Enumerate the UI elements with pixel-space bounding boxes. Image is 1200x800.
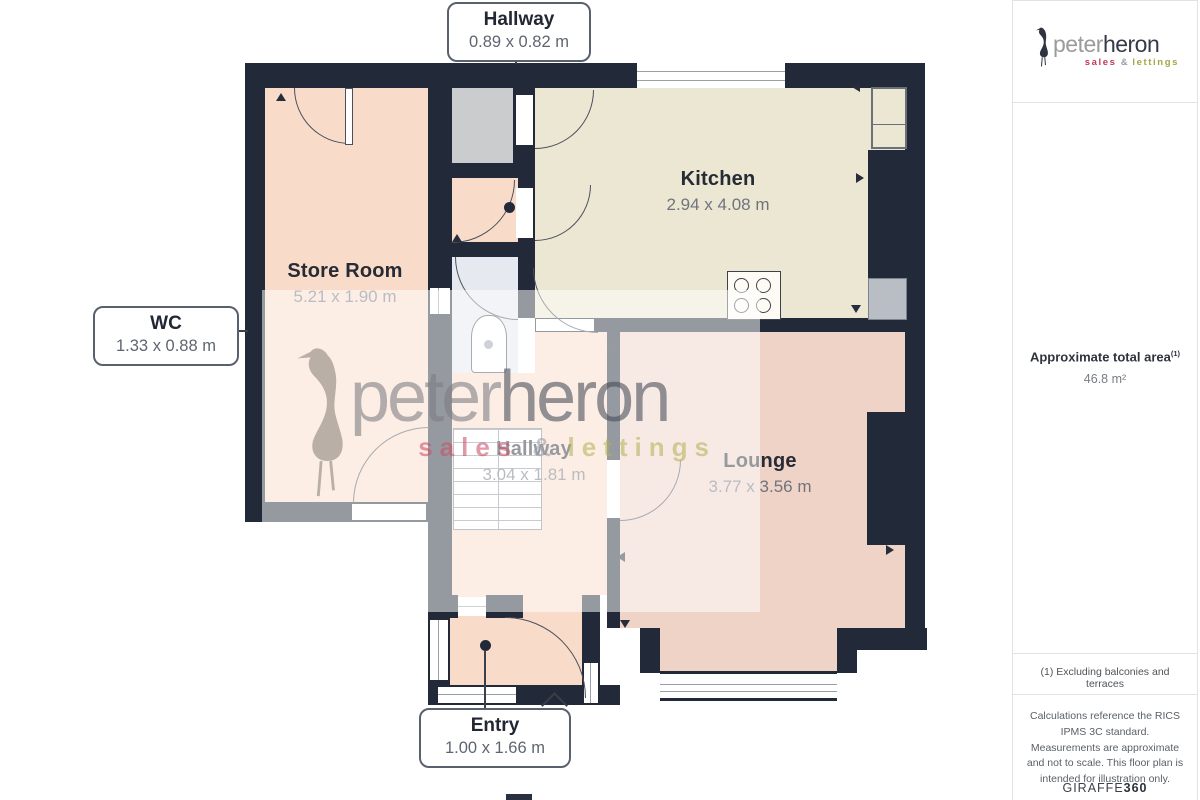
direction-arrow-icon bbox=[620, 620, 630, 628]
brand-wordmark: peterheron bbox=[1053, 31, 1159, 58]
bay-window bbox=[660, 671, 837, 701]
cupboard-floor bbox=[452, 88, 513, 163]
brand-tagline: sales & lettings bbox=[1053, 57, 1179, 68]
wall bbox=[868, 150, 905, 278]
giraffe360-credit: GIRAFFE360 bbox=[1013, 781, 1197, 795]
callout-connector bbox=[484, 650, 486, 710]
info-sidebar: peterheron sales & lettings Approximate … bbox=[1012, 0, 1198, 800]
chimney-breast bbox=[867, 412, 905, 545]
divider bbox=[1013, 102, 1197, 103]
door-opening bbox=[516, 188, 533, 238]
callout-entry: Entry 1.00 x 1.66 m bbox=[419, 708, 571, 768]
direction-arrow-icon bbox=[452, 234, 462, 242]
room-label-kitchen: Kitchen 2.94 x 4.08 m bbox=[666, 168, 769, 215]
kitchen-window bbox=[637, 63, 785, 88]
direction-arrow-icon bbox=[852, 82, 860, 92]
heron-icon bbox=[294, 346, 354, 498]
disclaimer-text: Calculations reference the RICS IPMS 3C … bbox=[1026, 709, 1184, 788]
door-leaf bbox=[345, 88, 353, 145]
wall bbox=[245, 63, 925, 88]
divider bbox=[1013, 653, 1197, 654]
wall bbox=[452, 242, 518, 257]
kitchen-appliance-icon bbox=[868, 278, 907, 320]
wall bbox=[837, 628, 857, 673]
wall bbox=[905, 63, 925, 628]
direction-arrow-icon bbox=[851, 305, 861, 313]
watermark-tagline: sales & lettings bbox=[352, 432, 716, 463]
total-area-block: Approximate total area(1) 46.8 m² bbox=[1013, 349, 1197, 386]
direction-arrow-icon bbox=[856, 173, 864, 183]
door-hinge-dot bbox=[504, 202, 515, 213]
brand-logo: peterheron sales & lettings bbox=[1033, 23, 1179, 75]
heron-icon bbox=[1035, 27, 1051, 67]
floor-plan-page: Kitchen 2.94 x 4.08 m Store Room 5.21 x … bbox=[0, 0, 1200, 800]
watermark-wordmark: peterheron bbox=[350, 356, 668, 438]
callout-wc: WC 1.33 x 0.88 m bbox=[93, 306, 239, 366]
area-footnote: (1) Excluding balconies and terraces bbox=[1021, 666, 1189, 690]
entry-side-window bbox=[584, 663, 598, 703]
direction-arrow-icon bbox=[276, 93, 286, 101]
callout-hallway-top: Hallway 0.89 x 0.82 m bbox=[447, 2, 591, 62]
wall bbox=[640, 628, 660, 673]
cropped-footer-text bbox=[506, 794, 532, 800]
divider bbox=[1013, 694, 1197, 695]
kitchen-appliance-icon bbox=[871, 87, 907, 149]
total-area-label: Approximate total area(1) bbox=[1013, 349, 1197, 364]
bay-floor bbox=[660, 628, 837, 671]
total-area-value: 46.8 m² bbox=[1013, 372, 1197, 386]
entry-side-window bbox=[430, 620, 448, 680]
door-opening bbox=[516, 95, 533, 145]
direction-arrow-icon bbox=[886, 545, 894, 555]
